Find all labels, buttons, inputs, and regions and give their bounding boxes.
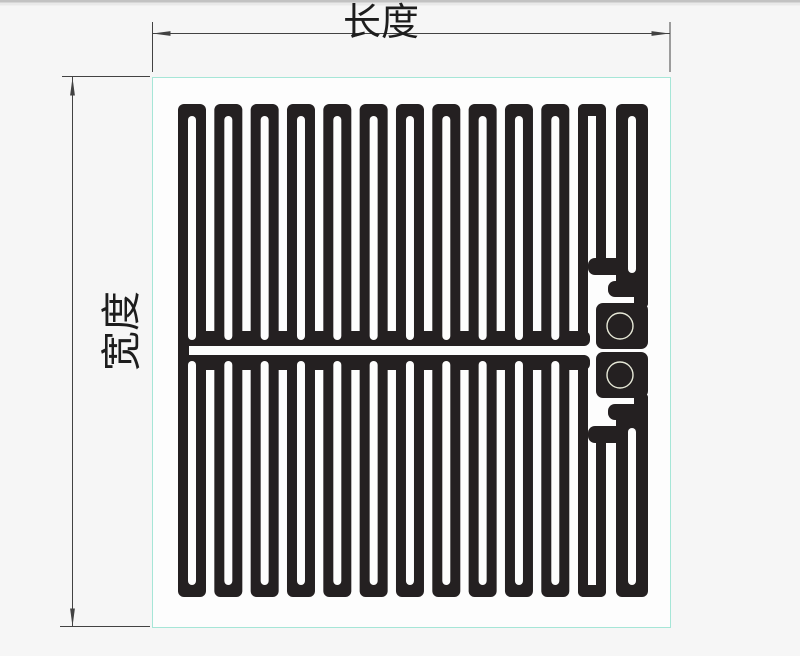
drawing-canvas: 长度 宽度 xyxy=(0,0,800,656)
heater-artwork xyxy=(153,78,671,628)
length-label: 长度 xyxy=(343,2,419,44)
half-connector-bar xyxy=(178,340,189,361)
width-label: 宽度 xyxy=(100,291,144,371)
technical-drawing: 长度 宽度 xyxy=(0,0,800,656)
